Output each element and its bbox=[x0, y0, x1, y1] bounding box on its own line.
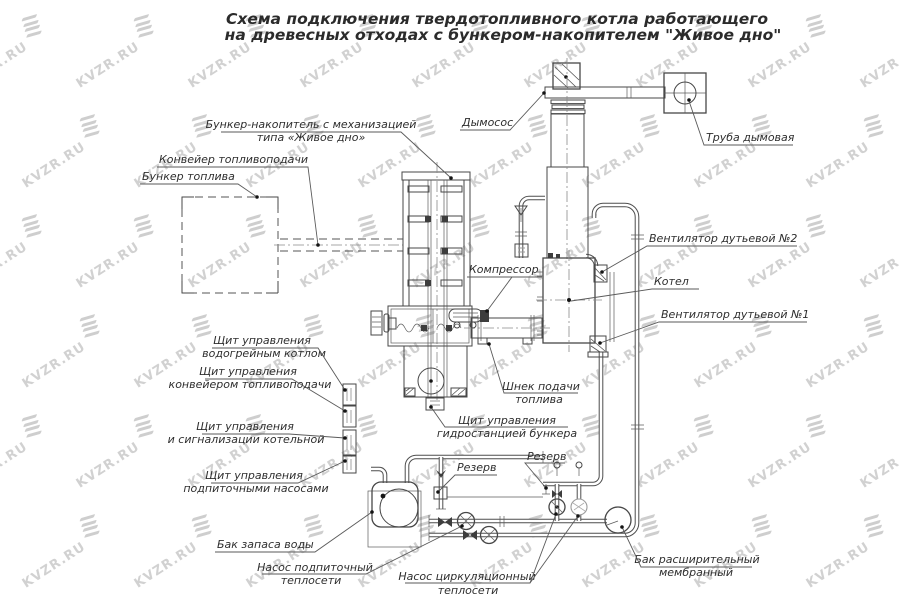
fan2-label: Вентилятор дутьевой №2 bbox=[649, 232, 797, 245]
fuel-bunker-label: Бункер топлива bbox=[142, 170, 235, 183]
expansion-tank bbox=[605, 507, 631, 533]
storage-bunker-label-line1: Бункер-накопитель с механизацией bbox=[206, 118, 417, 131]
circ-pump-label-line2: теплосети bbox=[438, 584, 499, 597]
title-block: Схема подключения твердотопливного котла… bbox=[225, 10, 782, 44]
fuel-bunker-outline bbox=[182, 197, 278, 293]
exp-tank-label-line2: мембранный bbox=[659, 566, 733, 579]
bottom-pump-row bbox=[438, 513, 504, 544]
panel-conveyor-label-line1: Щит управления bbox=[199, 365, 297, 378]
label-reserve1: Резерв bbox=[436, 461, 497, 494]
panel-alarm-label-line1: Щит управления bbox=[196, 420, 294, 433]
stack-lower bbox=[547, 167, 588, 258]
scheme-drawing: Схема подключения твердотопливного котла… bbox=[0, 0, 900, 600]
boiler-label: Котел bbox=[654, 275, 689, 288]
label-chimney: Труба дымовая bbox=[687, 98, 795, 145]
panel-boiler-label-line2: водогрейным котлом bbox=[202, 347, 326, 360]
discharge-hopper bbox=[404, 346, 467, 410]
water-tank bbox=[368, 482, 421, 547]
panel-pumps-label-line2: подпиточными насосами bbox=[183, 482, 328, 495]
panel-box-pumps bbox=[343, 456, 356, 473]
label-water-tank: Бак запаса воды bbox=[215, 510, 374, 552]
panel-box-boiler bbox=[343, 384, 356, 405]
stack-upper bbox=[551, 114, 584, 167]
chimney-label: Труба дымовая bbox=[706, 131, 795, 144]
panel-box-conveyor bbox=[343, 406, 356, 427]
label-circ-pump: Насос циркуляционный теплосети bbox=[398, 512, 579, 597]
storage-bunker-label-line2: типа «Живое дно» bbox=[257, 131, 366, 144]
chimney-assembly bbox=[545, 58, 706, 260]
makeup-pump-label-line1: Насос подпиточный bbox=[257, 561, 373, 574]
label-conveyor: Конвейер топливоподачи bbox=[157, 153, 320, 247]
compressor-label: Компрессор bbox=[469, 263, 539, 276]
feed-screw-label-line2: топлива bbox=[515, 393, 563, 406]
piping bbox=[371, 198, 644, 541]
label-fuel-bunker: Бункер топлива bbox=[140, 170, 259, 199]
water-tank-label: Бак запаса воды bbox=[217, 538, 314, 551]
label-feed-screw: Шнек подачи топлива bbox=[487, 342, 580, 406]
label-fan1: Вентилятор дутьевой №1 bbox=[598, 308, 809, 345]
smoke-exhauster-label: Дымосос bbox=[461, 116, 513, 129]
makeup-pump-label-line2: теплосети bbox=[281, 574, 342, 587]
fuel-conveyor-lines bbox=[274, 239, 403, 251]
exp-tank-label-line1: Бак расширительный bbox=[634, 553, 759, 566]
boiler-unit bbox=[536, 250, 614, 357]
label-panel-hydro: Щит управления гидростанцией бункера bbox=[429, 405, 577, 440]
reserve1-label: Резерв bbox=[457, 461, 496, 474]
diagram-canvas: KVZR.RUKVZR.RUKVZR.RUKVZR.RUKVZR.RUKVZR.… bbox=[0, 0, 900, 600]
label-panel-conveyor: Щит управления конвейером топливоподачи bbox=[169, 365, 347, 413]
panel-conveyor-label-line2: конвейером топливоподачи bbox=[169, 378, 332, 391]
conveyor-label: Конвейер топливоподачи bbox=[159, 153, 308, 166]
feed-screw-conveyor bbox=[464, 315, 550, 344]
hydro-station-panel-box bbox=[426, 398, 444, 410]
circ-pump-label-line1: Насос циркуляционный bbox=[398, 570, 535, 583]
label-smoke-exhauster: Дымосос bbox=[460, 91, 546, 130]
label-fan2: Вентилятор дутьевой №2 bbox=[600, 232, 797, 274]
label-exp-tank: Бак расширительный мембранный bbox=[620, 525, 759, 579]
panel-box-alarm bbox=[343, 430, 356, 455]
panel-boiler-label-line1: Щит управления bbox=[213, 334, 311, 347]
fan1-label: Вентилятор дутьевой №1 bbox=[661, 308, 809, 321]
page-title-line2: на древесных отходах с бункером-накопите… bbox=[225, 26, 782, 44]
reserve2-label: Резерв bbox=[527, 450, 566, 463]
label-panel-pumps: Щит управления подпиточными насосами bbox=[183, 459, 346, 495]
panel-pumps-label-line1: Щит управления bbox=[205, 469, 303, 482]
panel-hydro-label-line2: гидростанцией бункера bbox=[437, 427, 578, 440]
label-storage-bunker: Бункер-накопитель с механизацией типа «Ж… bbox=[206, 118, 453, 180]
live-bottom-base bbox=[371, 306, 472, 346]
feed-screw-label-line1: Шнек подачи bbox=[502, 380, 580, 393]
label-compressor: Компрессор bbox=[467, 263, 542, 313]
conveyor-motor bbox=[371, 311, 382, 335]
panel-hydro-label-line1: Щит управления bbox=[458, 414, 556, 427]
storage-bunker-structure bbox=[402, 162, 470, 400]
label-panel-alarm: Щит управления и сигнализации котельной bbox=[168, 420, 347, 446]
